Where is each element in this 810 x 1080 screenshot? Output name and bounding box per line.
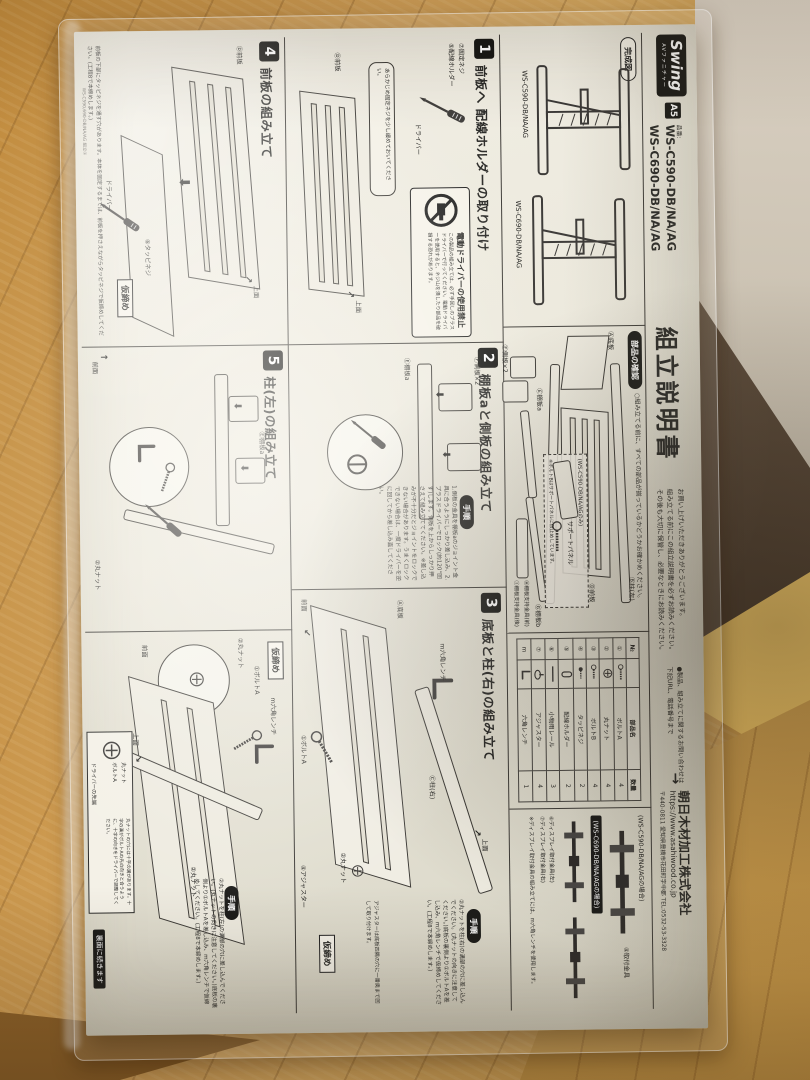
arrow-icon: ↑	[98, 353, 108, 361]
divider	[289, 342, 504, 346]
row-name: ボルトB	[587, 688, 601, 770]
screwdriver-icon	[414, 90, 469, 128]
support-panel-note: ※ボルトBはサポートパネルに仮止めしています。	[547, 459, 555, 567]
table-row: ⑦ アジャスター 4	[531, 639, 547, 802]
inset-nut-label: 丸ナット	[120, 762, 128, 783]
row-qty: 2	[560, 770, 575, 801]
margin-print-code: WS-C590,690-DB/NA/AG 組立①	[81, 88, 88, 156]
bracket-case-590: (WS-C590-DB/NA/AGの場合)	[637, 815, 647, 902]
row-qty: 4	[614, 770, 628, 801]
company-url: https://www.asahiwood.co.jp	[668, 791, 678, 898]
arrow-icon: ↗	[345, 290, 355, 298]
step5-nut-label: ②丸ナット	[93, 560, 102, 591]
table-row: ① ボルトA 4	[612, 638, 627, 801]
parts-table-header-no: №	[626, 637, 639, 658]
part-label-support-front: Ⓗ棚板支持金具(前)	[523, 580, 532, 627]
arrow-icon: ⬇	[433, 390, 444, 399]
table-row: ③ ボルトB 4	[586, 638, 601, 801]
arrow-icon: ↙	[301, 629, 311, 637]
base-board-shape	[561, 335, 610, 390]
row-no: ⑤	[558, 638, 573, 659]
contact-line-1: ●製品、組み立てに関するお問い合わせは	[674, 666, 685, 783]
adjuster-icon	[531, 660, 545, 689]
bolt-icon	[613, 659, 627, 688]
part-label-side-panels: Ⓕ側板×2	[501, 345, 510, 373]
step2-side-panel-shape-2	[447, 443, 481, 471]
table-row: ② 丸ナット 4	[599, 638, 614, 801]
final-front-face-label: 前面	[140, 645, 149, 658]
hex-wrench-icon	[517, 660, 531, 689]
no-power-drill-icon	[423, 192, 459, 228]
photo-scene: Swing AVファニチャー A5 品番: WS-C590-DB/NA/AG W…	[0, 0, 810, 1080]
row-name: 六角レンチ	[517, 689, 532, 771]
display-bracket-icon	[608, 823, 637, 941]
part-label-support-rear: Ⓘ棚板支持金具(後)	[513, 580, 522, 627]
warning-title: 電動ドライバーの使用禁止	[454, 232, 466, 328]
step4-screw-label: ⑥タッピネジ	[143, 239, 152, 276]
bolt-icon	[155, 461, 178, 497]
step1-cable-holder-label: ⑤配線ホルダー	[447, 43, 457, 87]
contact-line-2: 下記URL、電話番号まで	[664, 667, 675, 784]
step-5-number: 5	[263, 350, 283, 370]
bracket-note: ※ディスプレイ取付金具の組み立てには、m六角レンチを使用します。	[526, 816, 536, 1004]
parts-table-header-name: 部品名	[626, 687, 640, 769]
round-nut-icon	[600, 659, 614, 688]
screwdriver-icon	[345, 414, 390, 454]
step5-shelf-label: Ⓔ棚板a	[258, 432, 267, 455]
bolt-icon	[586, 659, 600, 688]
arrow-icon: →	[667, 772, 683, 784]
final-procedure-text: ②丸ナットを柱(左)の溝部の穴に差し込んでください。(丸ナットの向きに注意してく…	[192, 878, 226, 1008]
paper-size-badge: A5	[665, 102, 681, 118]
step1-top-face-label: 上面	[354, 300, 363, 313]
page-title: 組立説明書	[651, 326, 688, 461]
step2-shelf-label: Ⓔ棚板a	[403, 358, 412, 381]
divider	[499, 35, 512, 1011]
final-procedure-badge: 手順	[224, 886, 238, 920]
arrow-icon: ⬇	[176, 176, 192, 188]
parts-table-header-icon	[626, 658, 640, 687]
step5-front-face-label: 前面	[91, 362, 100, 375]
step2-procedure-badge: 手順	[460, 495, 474, 529]
model-number-2: WS-C690-DB/NA/AG	[647, 125, 663, 252]
step3-top-face-label: 上面	[481, 839, 490, 852]
table-row: m 六角レンチ 1	[517, 639, 533, 802]
screw-icon	[573, 659, 587, 688]
row-qty: 4	[532, 771, 546, 802]
step2-joint-inset	[327, 414, 404, 491]
step5-pillar-left-shape	[123, 509, 275, 555]
support-panel-label: サポートパネル	[566, 521, 576, 565]
warning-text: この製品の組み立ては、必ず手回しのプラスドライバーで行ってください。電動ドライバ…	[425, 232, 455, 332]
row-qty: 1	[518, 771, 532, 802]
part-label-shelf-a: Ⓔ棚板a	[535, 388, 544, 411]
step3-adjuster-label: ④アジャスター	[299, 865, 309, 908]
cable-holder-icon	[558, 659, 573, 688]
display-bracket-icon	[562, 818, 587, 906]
side-panel-shape-2	[502, 380, 528, 402]
row-no: m	[517, 639, 531, 660]
swing-logo-subtext: AVファニチャー	[659, 35, 667, 97]
final-nut-label: ②丸ナット	[236, 638, 245, 669]
step4-front-panel-label: Ⓓ前板	[235, 46, 244, 65]
round-nut-icon	[102, 740, 122, 760]
step-1-number: 1	[474, 39, 494, 59]
bracket-callout-690-right: ⑦ディスプレイ取付金具(右)	[539, 816, 548, 883]
step5-bolt-inset	[109, 426, 190, 507]
side-panel-shape-1	[510, 356, 536, 378]
divider	[85, 629, 292, 633]
row-no: ②	[599, 638, 612, 659]
row-name: 丸ナット	[600, 688, 614, 770]
parts-table: № 部品名 数量 ① ボルトA 4 ② 丸ナット 4	[516, 637, 641, 802]
round-nut-icon	[351, 864, 364, 877]
divider	[82, 344, 289, 348]
table-row: ⑤ 配線ホルダー 2	[558, 638, 575, 801]
step2-procedure-text: 1.側板の金具を棚板aのジョイント金具に合うようにしっかり差し込み、2.プラスド…	[295, 485, 458, 583]
table-row: ⑥ 小物用レール 3	[545, 638, 560, 801]
stand-diagram-c690	[528, 193, 629, 306]
row-name: タッピネジ	[574, 688, 588, 770]
arrow-icon: ⬇	[440, 450, 451, 459]
step1-note: あらかじめ固定ネジを少し緩めておいてください。	[374, 68, 391, 190]
step-4-number: 4	[259, 41, 279, 61]
step3-procedure-text: ②丸ナットを柱(右)の溝部の穴に差し込んでください。(丸ナットの向きに注意してく…	[424, 899, 466, 1005]
step3-procedure-badge: 手順	[467, 909, 481, 943]
step1-fixing-screw-label: ⑦固定ネジ	[457, 43, 466, 74]
intro-line-3: その後も大切に保管し、必要なときにお読みください。	[654, 489, 667, 654]
divider	[504, 325, 646, 328]
part-label-shelf-b: Ⓖ棚板b	[534, 604, 543, 627]
inset-text: 丸ナットの穴には十字の溝があります。十字の溝がボルトAの先の向きと合うように、十…	[103, 818, 131, 908]
divider	[509, 807, 651, 810]
step1-driver-label: ドライバー	[414, 124, 423, 155]
step4-top-face-label: 上面	[252, 286, 261, 299]
continue-on-back-badge: 裏面に続きます	[93, 930, 106, 989]
support-panel-shape	[552, 460, 579, 520]
row-qty: 4	[588, 770, 602, 801]
swing-logo: Swing AVファニチャー	[656, 34, 687, 96]
parts-check-badge: 部品の確認	[628, 331, 643, 389]
arrow-icon: ↗	[472, 829, 482, 837]
contact-text: ●製品、組み立てに関するお問い合わせは 下記URL、電話番号まで	[664, 666, 685, 783]
step3-base-board-label: Ⓐ底板	[396, 600, 405, 619]
model-number-1: WS-C590-DB/NA/AG	[663, 124, 679, 251]
joint-lock-icon	[342, 449, 372, 479]
instruction-sheet: Swing AVファニチャー A5 品番: WS-C590-DB/NA/AG W…	[74, 24, 708, 1036]
row-qty: 3	[546, 770, 560, 801]
round-nut-icon	[189, 671, 205, 687]
shelf-support-front-shape	[516, 518, 529, 578]
final-bolt-label: ①ボルトA	[253, 666, 262, 695]
part-label-front-panel: Ⓓ前板	[588, 583, 597, 602]
intro-line-1: お買い上げいただきありがとうございます。	[675, 488, 688, 653]
hex-wrench-icon	[251, 741, 275, 765]
bracket-callout-690-left: ⑥ディスプレイ取付金具(左)	[548, 816, 557, 883]
divider	[507, 631, 649, 634]
step4-temp-tighten-box: 仮締め	[117, 279, 133, 317]
step4-driver-label: ドライバー	[105, 179, 114, 210]
bracket-case-690-badge: (WS-C690-DB/NA/AGの場合)	[591, 815, 603, 913]
row-name: ボルトA	[613, 688, 627, 770]
stand-diagram-c590	[532, 63, 633, 176]
row-qty: 4	[601, 770, 615, 801]
shelf-a-shape	[520, 410, 538, 498]
arrow-icon: ⬇	[231, 402, 242, 411]
warning-box: 電動ドライバーの使用禁止 この製品の組み立ては、必ず手回しのプラスドライバーで行…	[410, 187, 472, 338]
row-name: 小物用レール	[545, 688, 559, 770]
row-qty: 2	[575, 770, 589, 801]
swing-logo-text: Swing	[666, 34, 687, 96]
step-4-title: 前板の組み立て	[257, 67, 277, 158]
divider	[292, 587, 507, 591]
row-name: アジャスター	[531, 689, 546, 771]
step3-pillar-label: Ⓒ柱(右)	[428, 775, 437, 799]
arrow-icon: ↘	[133, 755, 143, 763]
row-no: ③	[586, 638, 599, 659]
step-1-title: 前板へ 配線ホルダーの取り付け	[472, 65, 493, 252]
row-name: 配線ホルダー	[559, 688, 575, 770]
final-temp-tighten-box: 仮締め	[267, 641, 283, 679]
row-no: ⑦	[531, 639, 545, 660]
final-top-face-label: 上面	[131, 733, 140, 746]
rail-icon	[545, 659, 559, 688]
step4-note: 前板の下部にタッピネジを通す穴があります。本体を固定するまでは、前板を押さえなが…	[84, 46, 103, 338]
row-no: ④	[573, 638, 586, 659]
step-3-title: 底板と柱(右)の組み立て	[479, 619, 500, 762]
display-bracket-icon	[563, 914, 588, 1002]
step-3-number: 3	[481, 593, 501, 613]
arrow-icon: ↗	[243, 276, 253, 284]
support-panel-box: (WS-C590-DB/NA/AGのみ) サポートパネル ※ボルトBはサポートパ…	[543, 454, 589, 609]
step1-front-panel-label: Ⓓ前板	[333, 53, 342, 72]
final-wrench-label: m六角レンチ	[269, 697, 278, 735]
table-row: ④ タッピネジ 2	[573, 638, 588, 801]
part-label-pillar-left: Ⓑ柱(左)	[628, 577, 637, 601]
step3-wrench-label: m六角レンチ	[438, 643, 447, 681]
step2-side-panels-label: Ⓕ側板×2	[473, 357, 482, 385]
parts-table-header-row: № 部品名 数量	[626, 637, 641, 800]
bracket-callout-590: ④取付金具	[622, 947, 631, 978]
row-no: ⑥	[545, 638, 558, 659]
parts-table-header-qty: 数量	[627, 769, 641, 800]
divider	[284, 37, 297, 1013]
stand-model-label-1: WS-C590-DB/NA/AG	[520, 70, 529, 138]
step3-nut-label: ②丸ナット	[339, 853, 348, 884]
step3-temp-tighten-box: 仮締め	[319, 935, 335, 973]
stand-model-label-2: WS-C690-DB/NA/AG	[514, 200, 523, 268]
step3-front-face-label: 前面	[300, 599, 309, 612]
hex-wrench-icon	[134, 442, 156, 464]
step3-bolt-label: ①ボルトA	[299, 735, 308, 764]
arrow-icon: ⬇	[238, 464, 249, 473]
inset-bolt-label: ボルトA	[111, 762, 119, 782]
assembly-manual-document: Swing AVファニチャー A5 品番: WS-C590-DB/NA/AG W…	[74, 24, 702, 1021]
intro-text: お買い上げいただきありがとうございます。 組み立てる前にこの組立説明書を必ずお読…	[654, 488, 688, 653]
pillar-left-shape	[610, 363, 631, 603]
row-no: ①	[612, 638, 625, 659]
nut-detail-inset-box: 丸ナット ボルトA ドライバーの先端 丸ナットの穴には十字の溝があります。十字の…	[86, 731, 134, 914]
step1-front-panel-shape	[299, 91, 364, 297]
inset-driver-tip-label: ドライバーの先端	[90, 763, 99, 805]
step3-adjuster-note: アジャスターは底板四隅の穴に一番奥まで回して取り付けます。	[363, 900, 379, 1006]
step1-note-box: あらかじめ固定ネジを少し緩めておいてください。	[368, 62, 396, 196]
step5-shelf-shape	[214, 374, 230, 526]
